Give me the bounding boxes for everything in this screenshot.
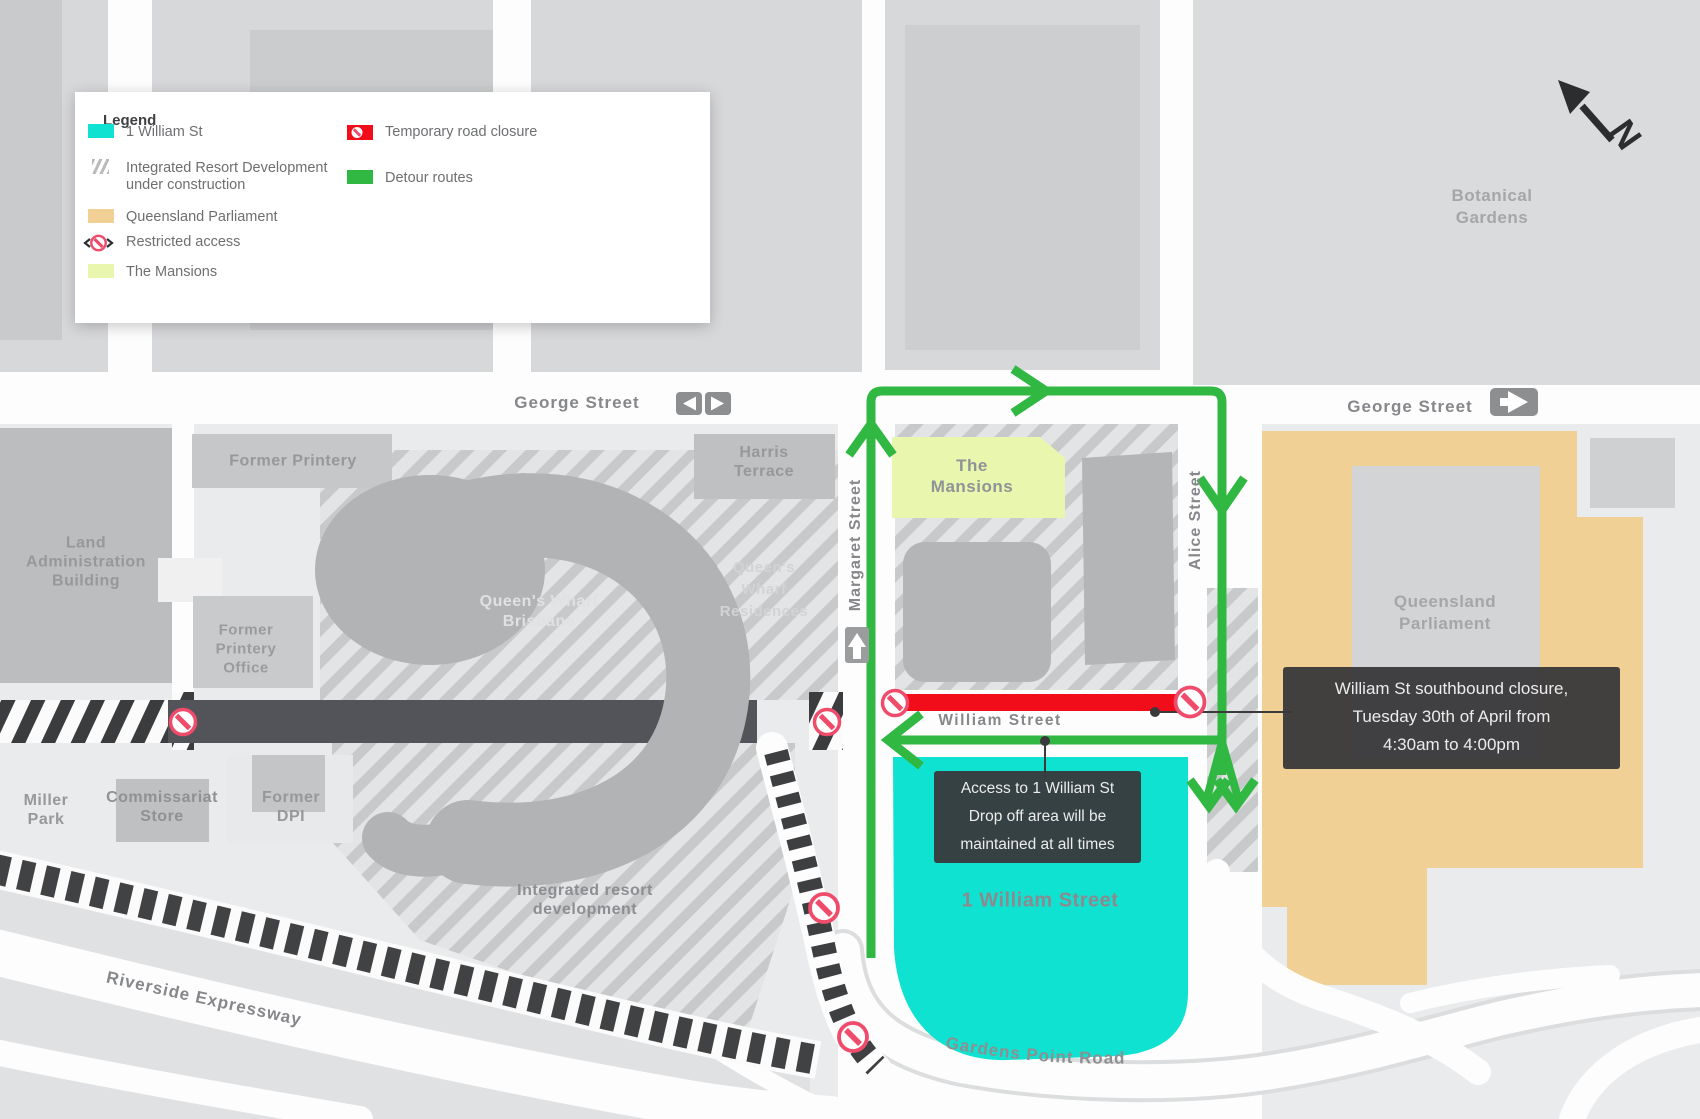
- integrated-resort-label: Integrated resortdevelopment: [517, 881, 653, 919]
- road-closure-swatch: [347, 124, 373, 140]
- former-printery-label: Former Printery: [229, 452, 357, 471]
- restricted-access-icon: [83, 233, 114, 253]
- miller-park-label: MillerPark: [24, 791, 69, 829]
- legend-item-restricted: Restricted access: [83, 233, 240, 253]
- former-dpi-label: FormerDPI: [262, 788, 320, 826]
- queens-wharf-residences-label: Queen'sWharfResidences: [720, 557, 808, 623]
- no-entry-icon: [1176, 688, 1205, 717]
- botanical-gardens-label: BotanicalGardens: [1451, 185, 1532, 229]
- queensland-parliament-label: QueenslandParliament: [1394, 591, 1496, 635]
- william-street-label: William Street: [938, 712, 1061, 730]
- legend-item-detour: Detour routes: [347, 169, 473, 187]
- queens-wharf-brisbane-label: Queen's WharfBrisbane: [480, 592, 599, 632]
- one-way-up-icon: [845, 627, 869, 663]
- one-way-right-icon: [1490, 388, 1538, 416]
- one-william-street-label: 1 William Street: [962, 890, 1119, 913]
- no-entry-icon: [171, 710, 196, 735]
- legend-item-parliament: Queensland Parliament: [88, 208, 278, 226]
- harris-terrace-label: HarrisTerrace: [734, 443, 794, 481]
- access-callout: Access to 1 William St Drop off area wil…: [934, 771, 1141, 863]
- parliament-swatch: [88, 209, 114, 223]
- construction-hatch-swatch: [92, 159, 109, 174]
- mansions-swatch: [88, 264, 114, 278]
- closure-callout: William St southbound closure, Tuesday 3…: [1283, 667, 1620, 769]
- alice-street-label: Alice Street: [1187, 470, 1205, 570]
- former-printery-office-label: FormerPrinteryOffice: [216, 621, 277, 678]
- commissariat-store-label: CommissariatStore: [106, 788, 218, 826]
- no-entry-icon: [883, 691, 908, 716]
- george-street-label-left: George Street: [514, 393, 639, 413]
- william-st-swatch: [88, 124, 114, 138]
- road-closure-bar: [895, 694, 1187, 711]
- legend-item-construction: Integrated Resort Development under cons…: [88, 159, 328, 194]
- legend-item-1-william-st: 1 William St: [88, 123, 203, 141]
- land-administration-label: LandAdministrationBuilding: [26, 534, 146, 591]
- road-closure-map: N Gardens Point Road George Street Georg…: [0, 0, 1700, 1119]
- no-entry-icon: [815, 710, 840, 735]
- no-entry-icon: [810, 894, 838, 922]
- detour-swatch: [347, 170, 373, 184]
- the-mansions-label: TheMansions: [931, 455, 1013, 497]
- legend-item-road-closure: Temporary road closure: [347, 123, 537, 141]
- legend-panel: Legend 1 William St Integrated Resort De…: [75, 92, 710, 323]
- botanical-gardens-block: [1193, 0, 1700, 385]
- margaret-street-label: Margaret Street: [847, 479, 865, 611]
- george-street-label-right: George Street: [1347, 397, 1472, 417]
- legend-item-mansions: The Mansions: [88, 263, 217, 281]
- two-way-arrows-icon: [676, 392, 731, 415]
- no-entry-icon: [839, 1023, 867, 1051]
